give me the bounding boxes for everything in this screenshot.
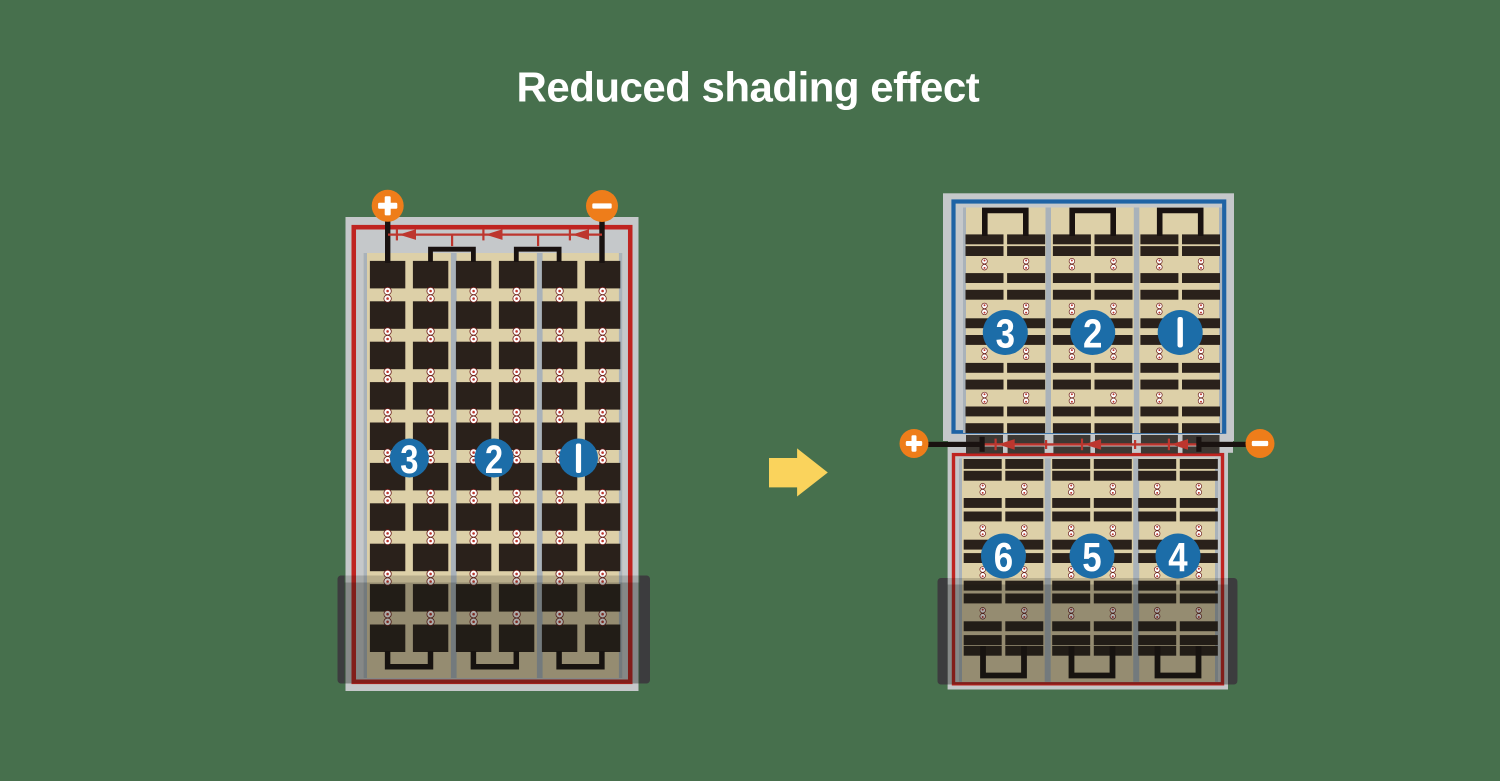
svg-text:3: 3 bbox=[400, 437, 418, 482]
svg-text:5: 5 bbox=[1082, 535, 1101, 580]
svg-text:2: 2 bbox=[1083, 312, 1102, 357]
svg-text:4: 4 bbox=[1168, 535, 1187, 580]
svg-text:6: 6 bbox=[994, 535, 1013, 580]
svg-text:3: 3 bbox=[996, 312, 1015, 357]
svg-text:2: 2 bbox=[485, 437, 503, 482]
svg-text:Reduced shading effect: Reduced shading effect bbox=[517, 64, 980, 111]
